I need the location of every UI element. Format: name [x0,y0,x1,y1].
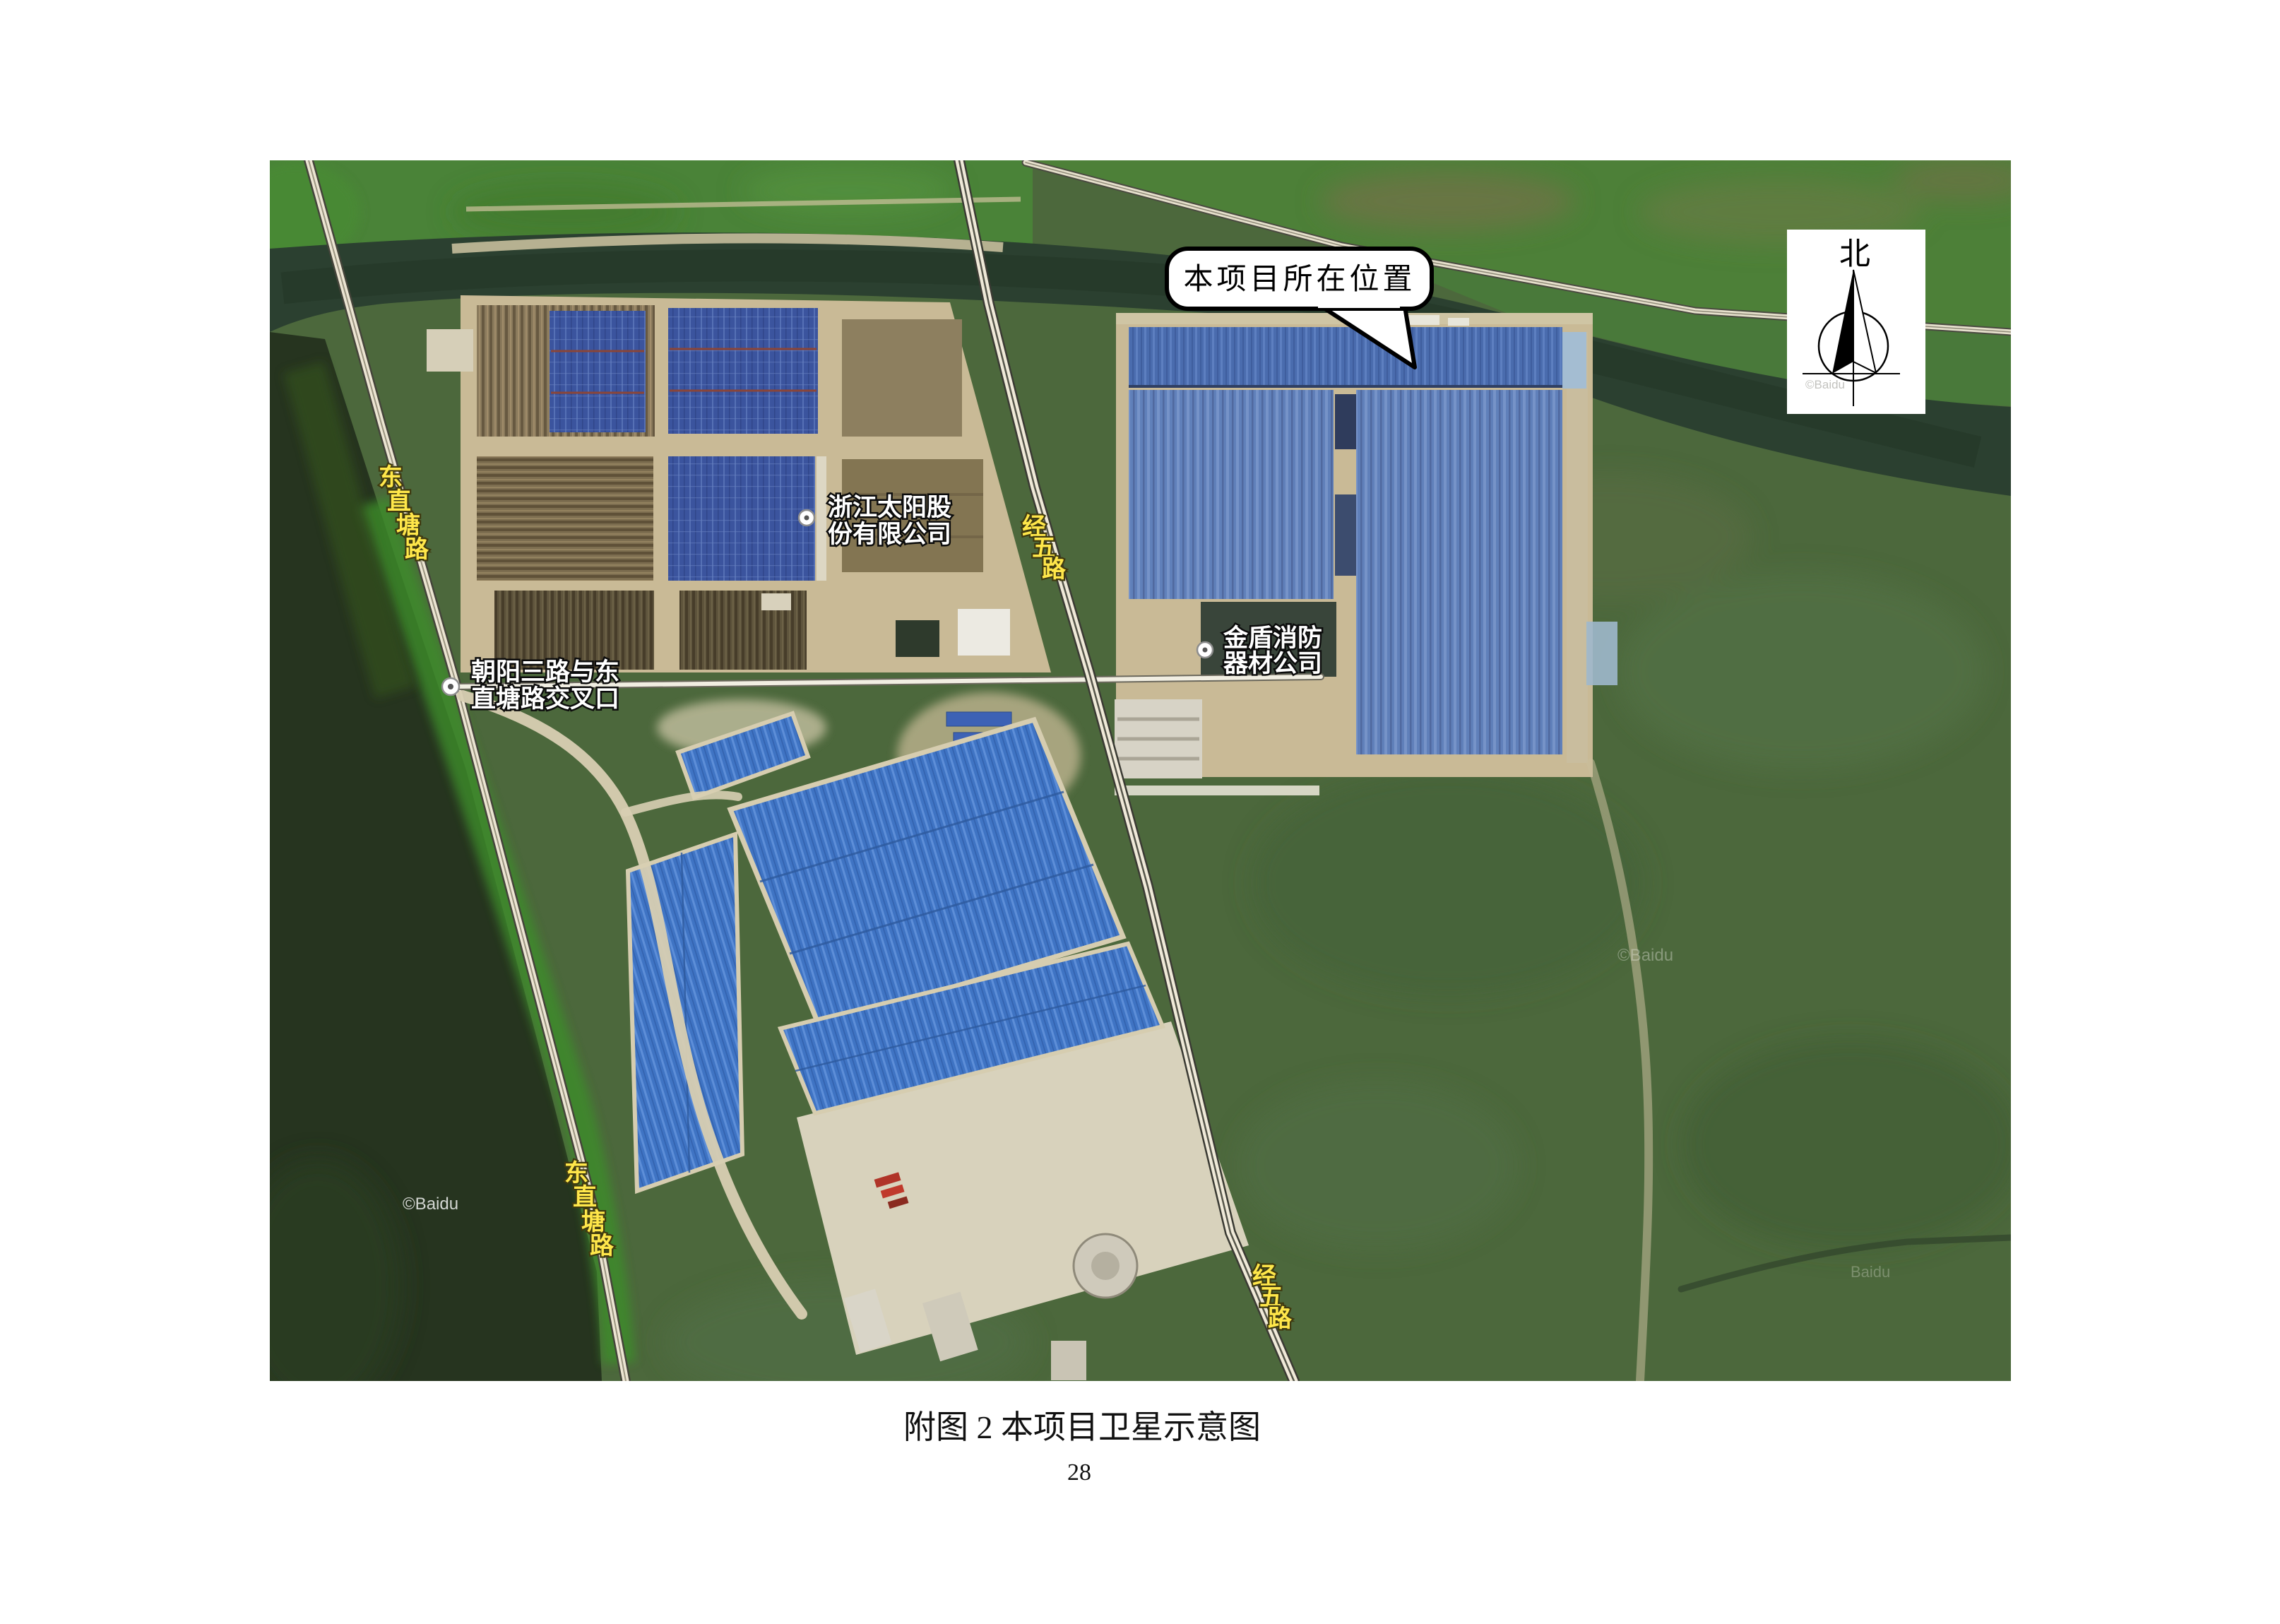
small-plot [427,329,473,372]
poi-label-line: 直塘路交叉口 [471,684,619,713]
baidu-watermark: ©Baidu [1805,378,1845,391]
project-north-hall [1129,327,1562,385]
callout-text: 本项目所在位置 [1183,263,1415,296]
baidu-watermark: Baidu [1851,1263,1890,1281]
solar-array [668,456,815,581]
road-label-char: 直 [573,1184,597,1211]
satellite-map-svg: ©Baidu ©Baidu Baidu 东 直 塘 路 经 五 路 经 五 路 [270,160,2011,1381]
road-label-char: 路 [1268,1305,1293,1332]
road-label-char: 路 [1042,556,1067,583]
annex-building [1562,332,1586,389]
road-label-char: 东 [564,1159,588,1187]
road-label-char: 塘 [581,1209,605,1235]
north-compass: 北 ©Baidu [1787,230,1925,414]
figure-caption: 附图 2 本项目卫星示意图 [903,1401,1261,1448]
white-building [958,609,1010,656]
poi-label-line: 金盾消防 [1223,624,1322,652]
project-site-compound [1115,313,1617,795]
poi-label-line: 份有限公司 [828,521,951,548]
pond [896,620,939,657]
poi-label-line: 器材公司 [1223,650,1322,677]
project-east-hall [1356,390,1562,754]
road-label-char: 东 [379,463,403,491]
road-label-char: 路 [590,1233,614,1260]
baidu-watermark: ©Baidu [1617,946,1673,965]
solar-array [668,308,818,434]
poi-label-line: 朝阳三路与东 [471,658,619,686]
north-label: 北 [1839,237,1870,271]
page-number: 28 [1067,1459,1091,1486]
road-label-char: 直 [387,488,411,515]
poi-label-line: 浙江太阳股 [828,494,951,521]
document-page: ©Baidu ©Baidu Baidu 东 直 塘 路 经 五 路 经 五 路 [0,0,2280,1624]
satellite-map-figure: ©Baidu ©Baidu Baidu 东 直 塘 路 经 五 路 经 五 路 [270,160,2011,1381]
road-label-char: 塘 [396,512,420,539]
project-west-hall [1129,390,1334,599]
baidu-watermark: ©Baidu [403,1195,458,1214]
road-label-char: 路 [405,536,429,563]
solar-array [550,311,646,432]
